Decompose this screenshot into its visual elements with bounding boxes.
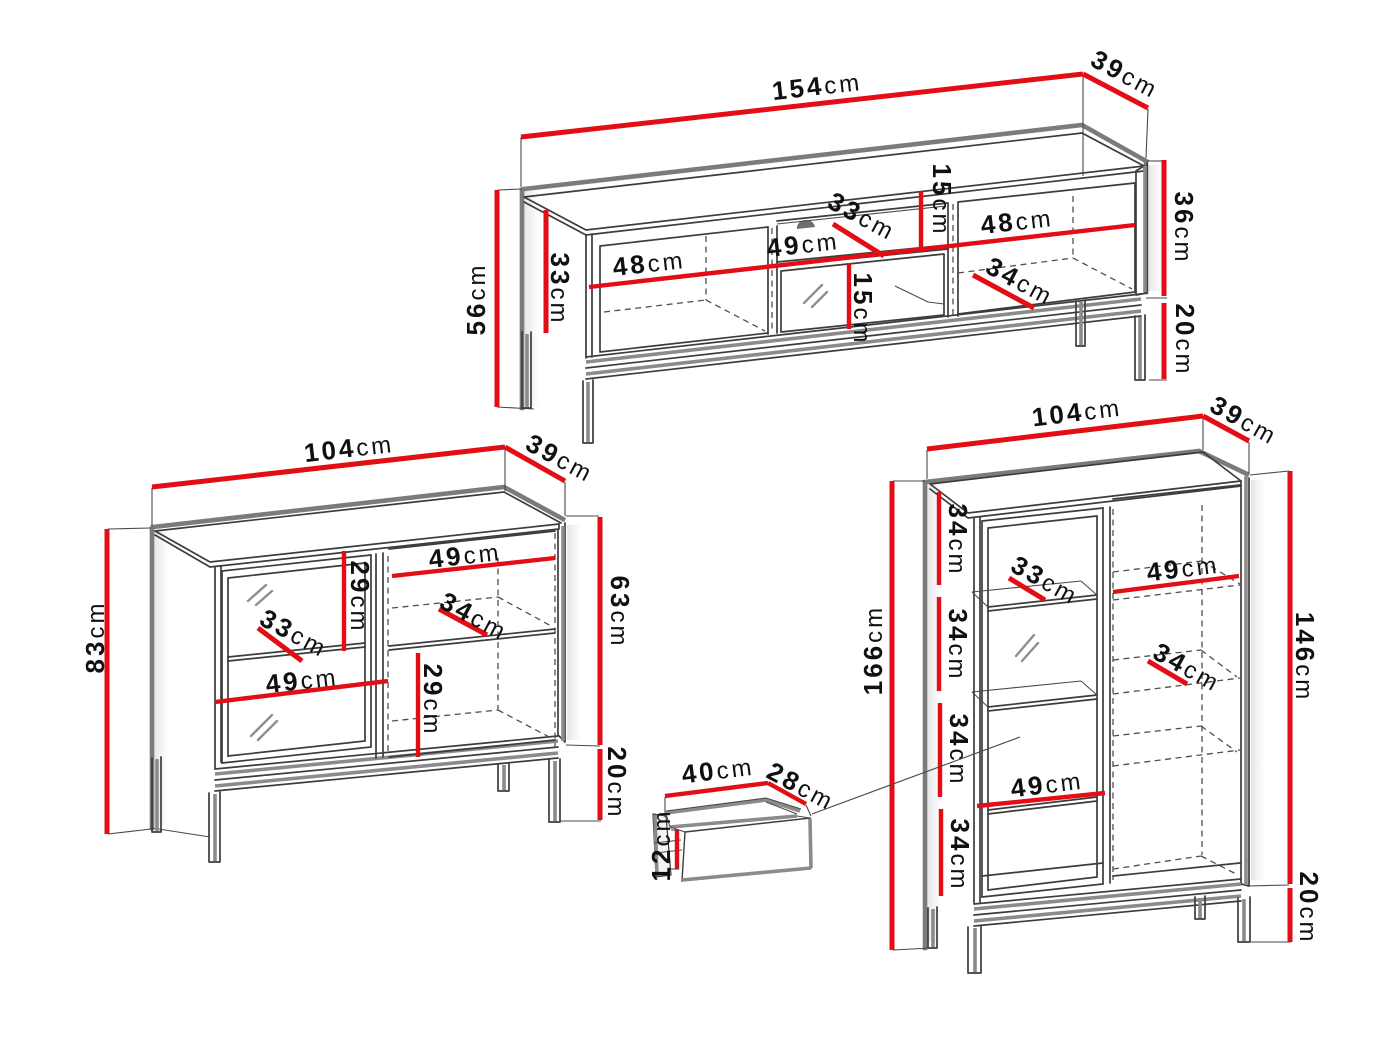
svg-text:29cm: 29cm — [345, 561, 375, 634]
svg-text:83cm: 83cm — [80, 601, 110, 674]
svg-text:146cm: 146cm — [1290, 612, 1320, 702]
svg-text:20cm: 20cm — [1170, 304, 1200, 377]
svg-text:166cm: 166cm — [858, 605, 888, 695]
svg-text:29cm: 29cm — [418, 664, 448, 737]
svg-text:33cm: 33cm — [545, 253, 575, 326]
svg-text:34cm: 34cm — [945, 819, 975, 892]
svg-text:34cm: 34cm — [943, 504, 973, 577]
svg-text:36cm: 36cm — [1169, 192, 1199, 265]
svg-text:12cm: 12cm — [646, 809, 676, 882]
svg-text:34cm: 34cm — [943, 609, 973, 682]
svg-text:56cm: 56cm — [461, 263, 491, 336]
svg-text:34cm: 34cm — [944, 714, 974, 787]
svg-text:15cm: 15cm — [848, 273, 878, 346]
svg-text:15cm: 15cm — [927, 164, 957, 237]
svg-text:63cm: 63cm — [605, 576, 635, 649]
svg-text:20cm: 20cm — [602, 747, 632, 820]
svg-text:20cm: 20cm — [1294, 872, 1324, 945]
